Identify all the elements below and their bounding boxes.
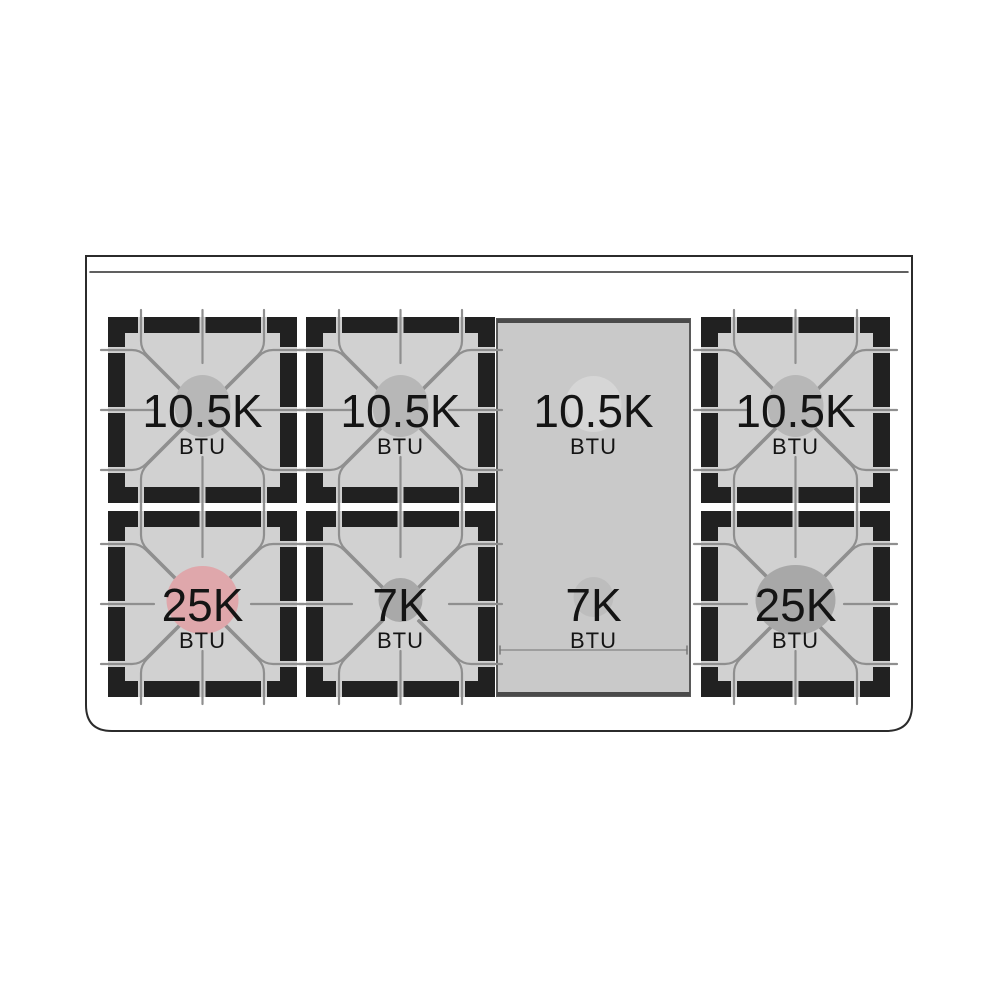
btu-value-label: 10.5K [142, 385, 263, 437]
burner-front-center-left: 7KBTU [299, 504, 502, 704]
burner-back-right: 10.5KBTU [694, 310, 897, 510]
btu-value-label: 10.5K [340, 385, 461, 437]
burner-front-left: 25KBTU [101, 504, 304, 704]
burner-back-left: 10.5KBTU [101, 310, 304, 510]
btu-value-label: 10.5K [533, 385, 654, 437]
btu-unit-label: BTU [570, 434, 617, 459]
cooktop-diagram-svg: 10.5KBTU10.5KBTU10.5KBTU10.5KBTU25KBTU7K… [0, 0, 1000, 1000]
range-top-diagram: 10.5KBTU10.5KBTU10.5KBTU10.5KBTU25KBTU7K… [0, 0, 1000, 1000]
btu-unit-label: BTU [377, 628, 424, 653]
btu-value-label: 25K [755, 579, 837, 631]
btu-value-label: 7K [372, 579, 429, 631]
btu-value-label: 7K [565, 579, 622, 631]
burner-griddle-front: 7KBTU [565, 577, 622, 653]
btu-value-label: 10.5K [735, 385, 856, 437]
burner-back-center-left: 10.5KBTU [299, 310, 502, 510]
btu-unit-label: BTU [179, 434, 226, 459]
burner-front-right: 25KBTU [694, 504, 897, 704]
griddle-front-edge [497, 692, 690, 696]
btu-unit-label: BTU [377, 434, 424, 459]
btu-value-label: 25K [162, 579, 244, 631]
griddle-back-edge [497, 319, 690, 323]
btu-unit-label: BTU [570, 628, 617, 653]
btu-unit-label: BTU [179, 628, 226, 653]
btu-unit-label: BTU [772, 628, 819, 653]
btu-unit-label: BTU [772, 434, 819, 459]
